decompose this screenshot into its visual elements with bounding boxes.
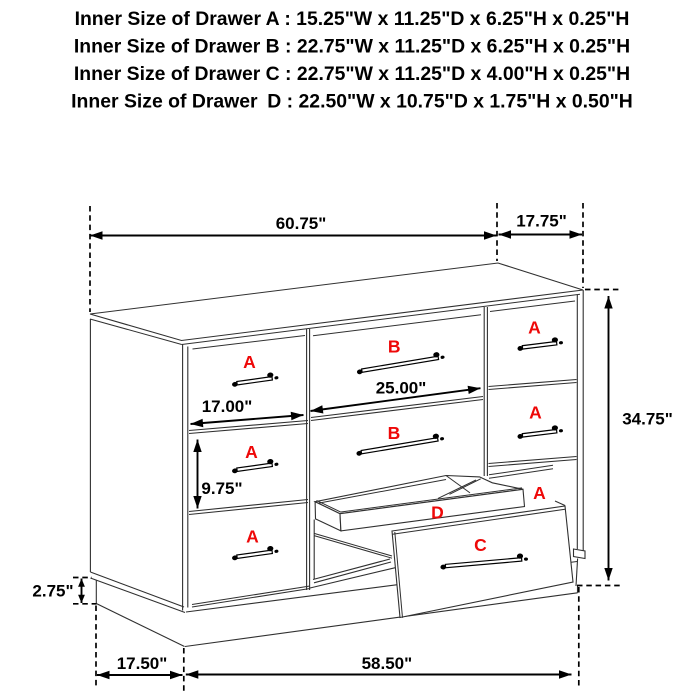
svg-text:Inner Size of Drawer B : 22.75: Inner Size of Drawer B : 22.75"W x 11.25… [74,36,630,58]
svg-text:D: D [431,503,444,523]
svg-text:Inner Size of Drawer C : 22.75: Inner Size of Drawer C : 22.75"W x 11.25… [74,63,630,85]
svg-text:A: A [245,442,258,462]
svg-text:2.75": 2.75" [32,582,73,601]
svg-text:A: A [246,526,259,546]
svg-text:A: A [243,352,256,372]
svg-text:B: B [388,337,401,357]
svg-text:58.50": 58.50" [362,654,413,673]
svg-text:B: B [388,423,401,443]
svg-text:A: A [533,483,546,503]
svg-text:C: C [474,535,487,555]
svg-text:A: A [529,403,542,423]
svg-text:17.75": 17.75" [516,212,567,231]
svg-text:17.50": 17.50" [117,654,168,673]
svg-text:9.75": 9.75" [201,479,242,498]
svg-text:A: A [528,318,541,338]
svg-text:Inner Size of Drawer D : 22.50: Inner Size of Drawer D : 22.50"W x 10.75… [71,91,633,113]
svg-text:Inner Size of Drawer A : 15.25: Inner Size of Drawer A : 15.25"W x 11.25… [75,8,630,30]
svg-text:25.00": 25.00" [376,379,427,398]
svg-text:60.75": 60.75" [276,214,327,233]
svg-text:34.75": 34.75" [622,410,673,429]
svg-text:17.00": 17.00" [202,397,253,416]
